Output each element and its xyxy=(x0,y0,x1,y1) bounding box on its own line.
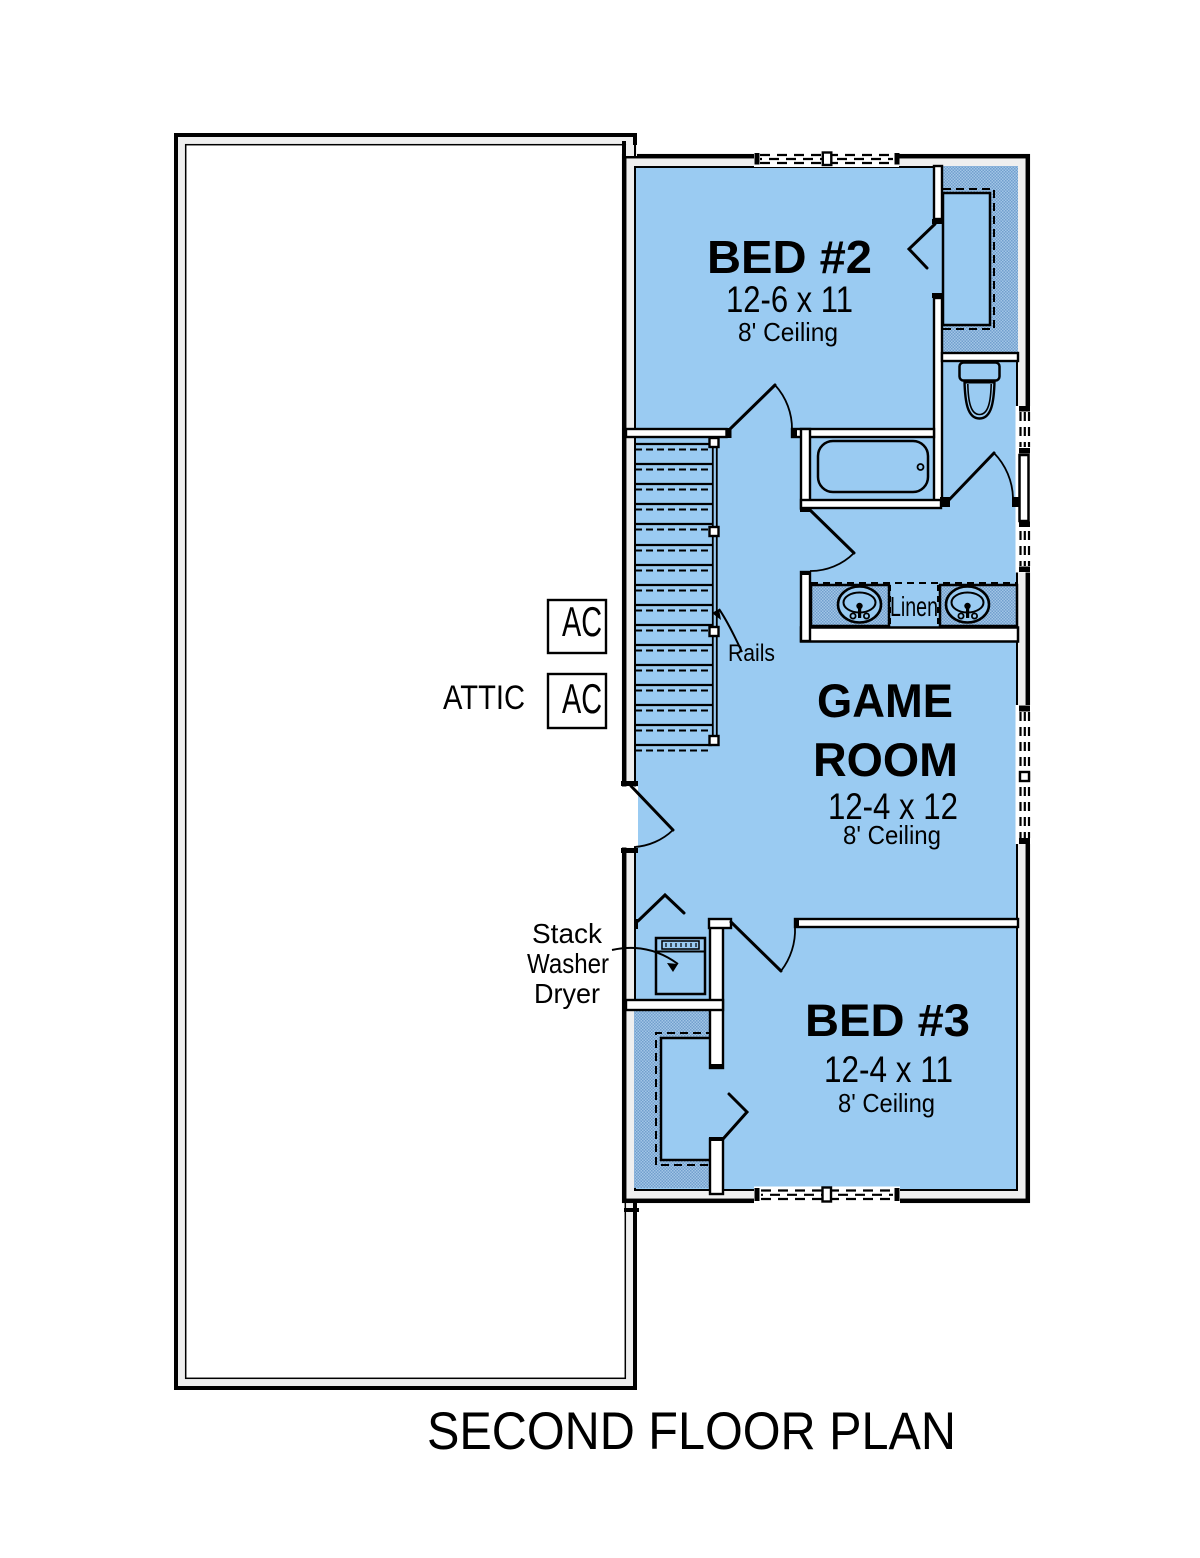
svg-text:8' Ceiling: 8' Ceiling xyxy=(838,1088,935,1118)
svg-text:Washer: Washer xyxy=(527,948,609,979)
svg-text:Dryer: Dryer xyxy=(534,978,600,1009)
svg-text:8' Ceiling: 8' Ceiling xyxy=(738,317,838,347)
svg-text:AC: AC xyxy=(562,598,602,645)
svg-text:ROOM: ROOM xyxy=(813,733,958,786)
svg-text:BED #3: BED #3 xyxy=(805,995,970,1046)
svg-text:Rails: Rails xyxy=(728,640,775,667)
svg-text:BED #2: BED #2 xyxy=(707,231,872,283)
svg-text:Stack: Stack xyxy=(532,918,603,949)
svg-text:12-6 x 11: 12-6 x 11 xyxy=(726,279,853,320)
svg-text:GAME: GAME xyxy=(817,674,953,727)
svg-text:Linen: Linen xyxy=(890,591,938,622)
svg-text:ATTIC: ATTIC xyxy=(443,679,525,717)
svg-text:12-4 x 11: 12-4 x 11 xyxy=(824,1049,953,1090)
svg-text:SECOND FLOOR PLAN: SECOND FLOOR PLAN xyxy=(427,1402,956,1461)
svg-text:8' Ceiling: 8' Ceiling xyxy=(843,820,941,850)
svg-text:AC: AC xyxy=(562,675,602,722)
